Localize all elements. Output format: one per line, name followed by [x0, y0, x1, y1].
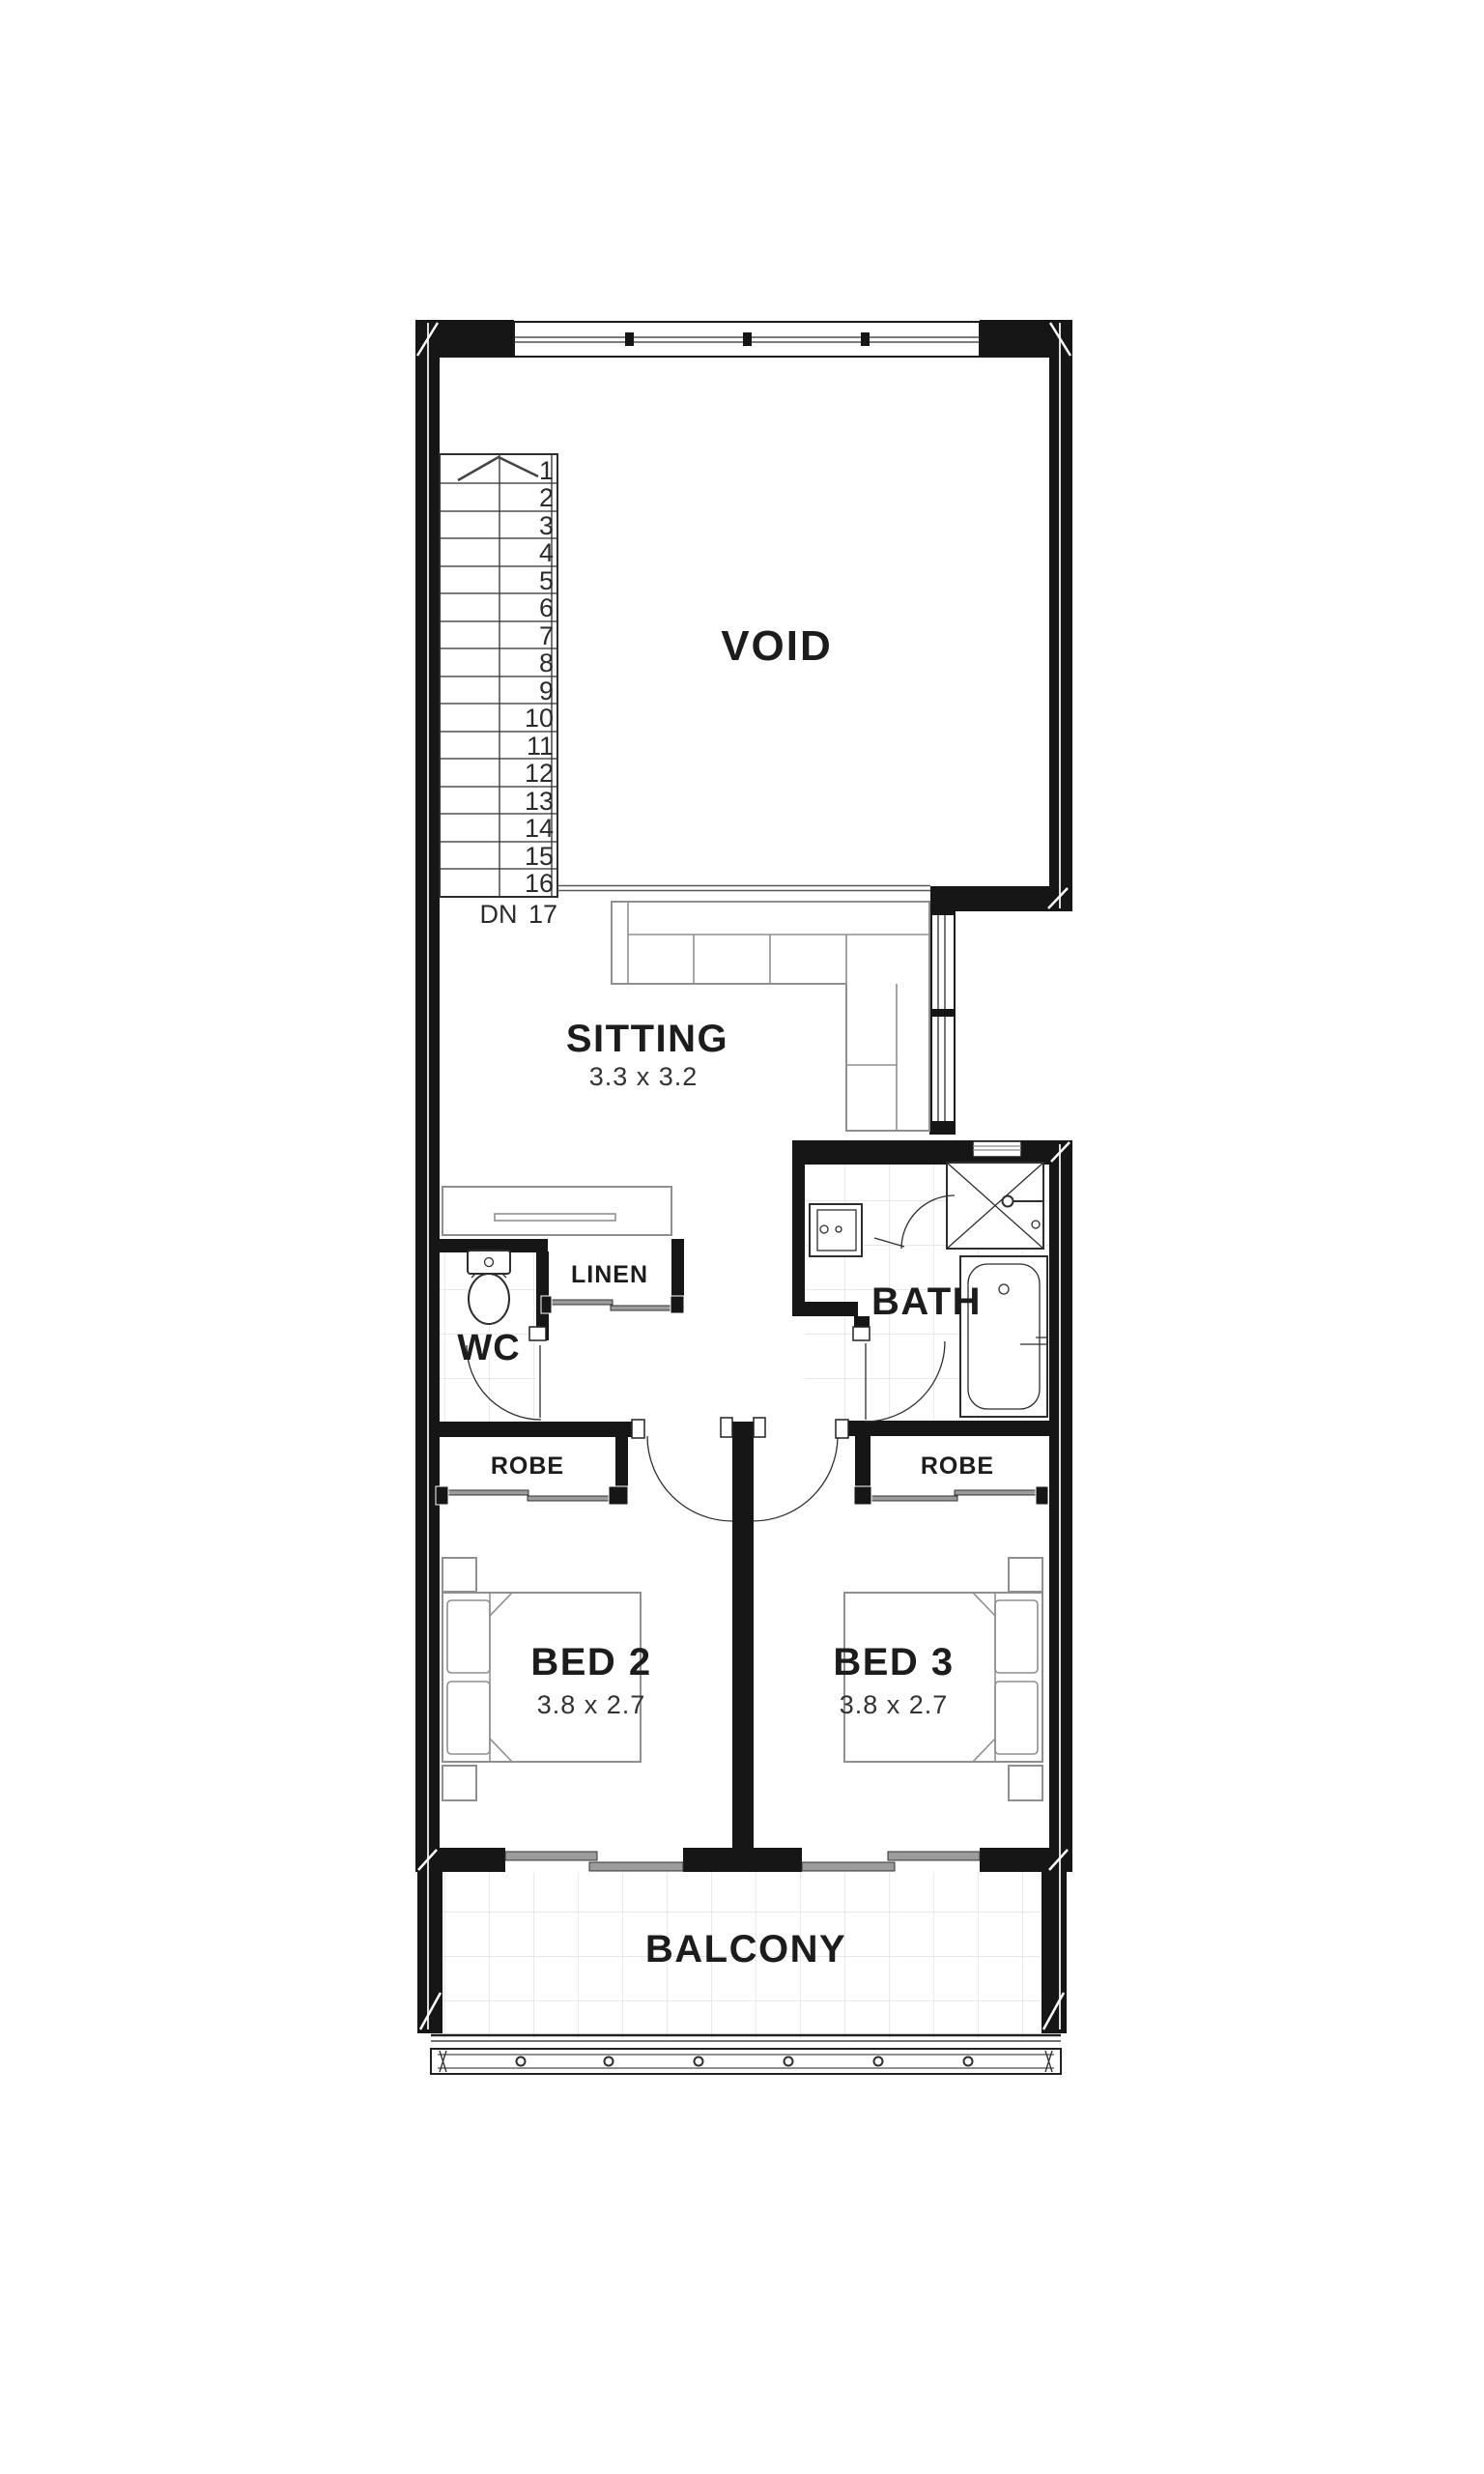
hall-south-wall-right	[848, 1421, 1072, 1436]
sitting-sofa	[612, 902, 929, 1131]
stair-tread-number: 7	[539, 621, 554, 650]
wc-label: WC	[457, 1328, 520, 1368]
railing-post	[785, 2057, 793, 2066]
stair-tread-number: 1	[539, 456, 554, 485]
sitting-label: SITTING	[566, 1018, 728, 1060]
stair-tread-number: 6	[539, 593, 554, 622]
railing-post	[695, 2057, 703, 2066]
stair-tread-number: 5	[539, 566, 554, 595]
bed3-dimensions: 3.8 x 2.7	[840, 1690, 949, 1719]
robe-bed2-label: ROBE	[491, 1453, 564, 1480]
stair-down-label: DN	[480, 900, 518, 929]
stair-tread-number: 8	[539, 648, 554, 677]
sitting-side-window	[929, 902, 956, 1135]
sitting-dimensions: 3.3 x 3.2	[589, 1062, 699, 1091]
bed2-side-table	[442, 1766, 476, 1800]
stair-bottom-step-number: 17	[528, 900, 557, 929]
stair-tread-number: 12	[525, 759, 554, 788]
bed2-balcony-sliding-door	[505, 1852, 683, 1871]
linen-right-wall	[671, 1239, 684, 1303]
robe-bed2-sliding-door	[436, 1486, 628, 1505]
stair-tread-number: 15	[525, 842, 554, 871]
staircase: 1 2 3 4 5 6 7 8 9 10 11 12 13 14 15 16 D…	[440, 454, 930, 929]
railing-post	[605, 2057, 614, 2066]
stair-tread-number: 11	[527, 732, 554, 761]
stair-tread-number: 3	[539, 511, 554, 540]
bed2-door	[632, 1418, 732, 1521]
stair-tread-number: 14	[525, 814, 554, 843]
robe-bed3-sliding-door	[854, 1486, 1048, 1505]
top-window	[514, 322, 980, 357]
bath-left-return-wall	[792, 1302, 858, 1316]
railing-post	[517, 2057, 526, 2066]
void-balustrade-edge	[557, 886, 930, 891]
bed3-balcony-sliding-door	[802, 1852, 980, 1871]
void-label: VOID	[721, 622, 833, 670]
bed3-door	[753, 1418, 848, 1521]
bath-vanity	[810, 1204, 862, 1256]
top-wall-left-block	[415, 320, 514, 358]
south-wall-center-block	[683, 1848, 802, 1872]
stair-tread-number: 2	[539, 483, 554, 512]
floor-plan-svg: 1 2 3 4 5 6 7 8 9 10 11 12 13 14 15 16 D…	[0, 0, 1484, 2474]
railing-post	[874, 2057, 883, 2066]
balcony-left-wall	[417, 1872, 442, 2033]
balcony-label: BALCONY	[645, 1928, 846, 1971]
bath-left-wall	[792, 1165, 805, 1302]
stair-tread-number: 4	[539, 538, 554, 567]
sitting-desk	[442, 1187, 671, 1235]
bath-top-wall	[792, 1140, 1072, 1165]
stair-tread-number: 16	[525, 869, 554, 898]
robe-bed3-left-wall	[855, 1436, 870, 1490]
bed2-side-table	[442, 1558, 476, 1592]
bath-highlight-window	[973, 1141, 1021, 1157]
balcony-railing	[431, 2035, 1061, 2074]
robe-bed3-label: ROBE	[921, 1453, 994, 1480]
hall-south-wall-left	[415, 1422, 633, 1437]
floor-plan-page: 1 2 3 4 5 6 7 8 9 10 11 12 13 14 15 16 D…	[0, 0, 1484, 2474]
stair-tread-number: 10	[525, 704, 554, 733]
bed3-label: BED 3	[833, 1641, 954, 1683]
bed3-side-table	[1009, 1766, 1042, 1800]
wc-toilet	[468, 1251, 510, 1324]
bedroom-dividing-wall	[732, 1422, 754, 1872]
stair-tread-number: 13	[525, 787, 554, 816]
bed2-dimensions: 3.8 x 2.7	[537, 1690, 646, 1719]
bath-label: BATH	[871, 1280, 982, 1323]
stair-tread-number: 9	[539, 676, 554, 705]
linen-sliding-door	[541, 1296, 684, 1313]
linen-label: LINEN	[571, 1261, 648, 1288]
robe-bed2-right-wall	[615, 1437, 628, 1490]
bed2-label: BED 2	[530, 1641, 651, 1683]
bed3-side-table	[1009, 1558, 1042, 1592]
railing-post	[964, 2057, 973, 2066]
